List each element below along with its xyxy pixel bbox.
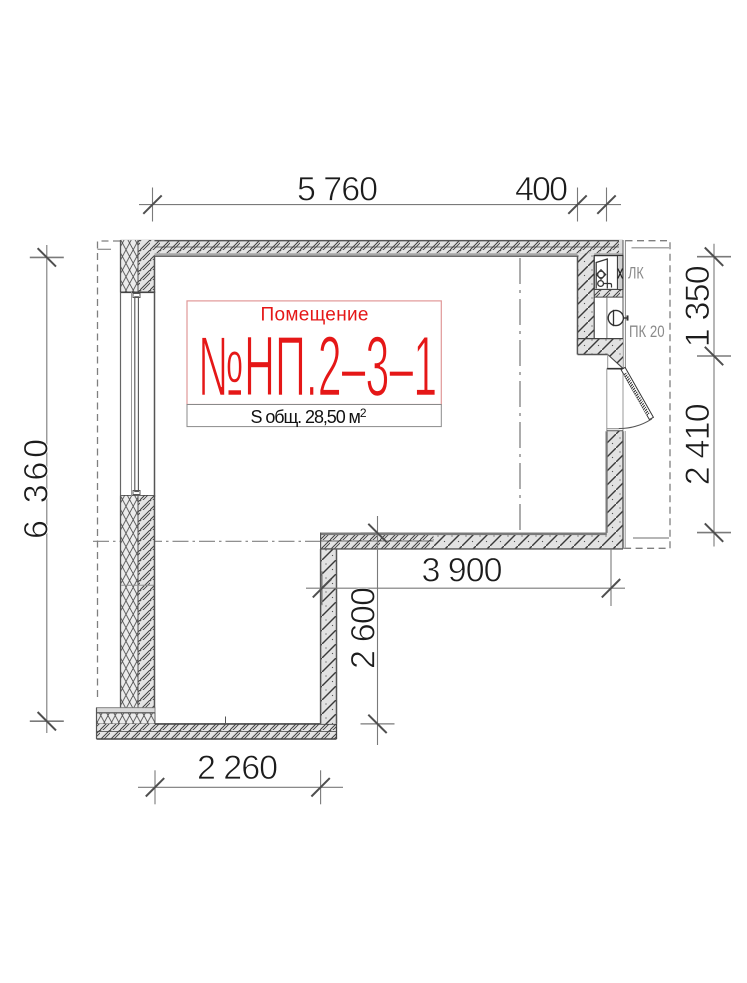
svg-text:2 260: 2 260 [197,749,278,787]
svg-text:3 900: 3 900 [422,552,503,590]
svg-text:S общ. 28,50 м2: S общ. 28,50 м2 [251,406,367,427]
svg-text:ЛК: ЛК [628,264,644,283]
svg-text:6 360: 6 360 [18,439,56,539]
svg-text:№НП.2–3–1: №НП.2–3–1 [198,320,437,415]
svg-text:400: 400 [515,170,568,208]
svg-text:1 350: 1 350 [679,265,717,347]
svg-text:5 760: 5 760 [297,170,378,208]
svg-text:2 600: 2 600 [345,587,383,669]
svg-text:2 410: 2 410 [679,403,717,485]
svg-text:ПК 20: ПК 20 [629,323,665,342]
